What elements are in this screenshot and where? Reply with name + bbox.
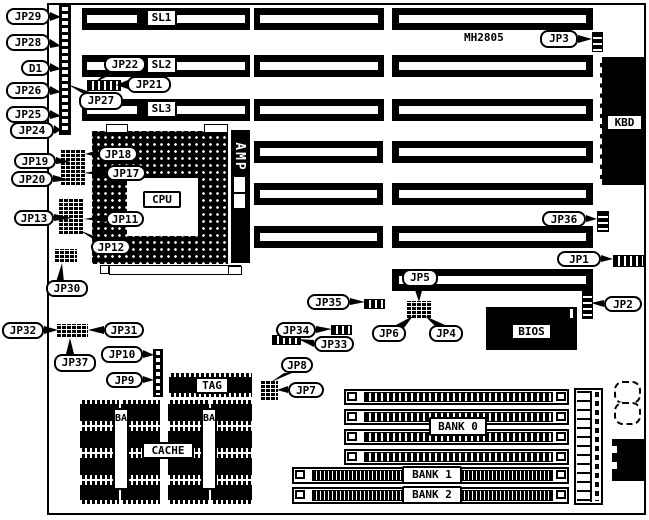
callout-jp24: JP24 <box>10 122 54 139</box>
callout-jp8: JP8 <box>281 357 313 373</box>
callout-jp20: JP20 <box>11 171 53 187</box>
callout-jp35: JP35 <box>307 294 350 310</box>
callout-jp33: JP33 <box>314 336 354 352</box>
callout-jp1: JP1 <box>557 251 601 267</box>
callout-jp10: JP10 <box>101 346 143 363</box>
callout-jp34: JP34 <box>276 322 316 338</box>
callout-jp18: JP18 <box>98 146 138 162</box>
callout-jp13: JP13 <box>14 210 54 226</box>
callout-jp26: JP26 <box>6 82 50 99</box>
callout-jp17: JP17 <box>106 165 146 181</box>
callout-jp21: JP21 <box>127 76 171 93</box>
callout-d1: D1 <box>21 60 50 76</box>
callout-jp19: JP19 <box>14 153 56 169</box>
motherboard-diagram: SL1 SL2 SL3 MH2805 CPU AMP KBD BIOS TAG <box>0 0 649 520</box>
callout-pointers <box>0 0 649 520</box>
callout-jp7: JP7 <box>288 382 324 398</box>
callout-jp31: JP31 <box>104 322 144 338</box>
callout-jp36: JP36 <box>542 211 586 227</box>
callout-jp22: JP22 <box>104 56 146 73</box>
callout-jp4: JP4 <box>429 325 463 342</box>
callout-jp30: JP30 <box>46 280 88 297</box>
callout-jp6: JP6 <box>372 325 406 342</box>
callout-jp12: JP12 <box>91 239 131 255</box>
callout-jp25: JP25 <box>6 106 50 123</box>
callout-jp27: JP27 <box>79 92 123 110</box>
callout-jp32: JP32 <box>2 322 44 339</box>
callout-jp37: JP37 <box>54 354 96 372</box>
callout-jp5: JP5 <box>402 269 438 287</box>
callout-jp3: JP3 <box>540 30 578 48</box>
callout-jp11: JP11 <box>106 211 144 227</box>
callout-jp9: JP9 <box>106 372 143 388</box>
callout-jp29: JP29 <box>6 8 50 25</box>
callout-jp2: JP2 <box>604 296 642 312</box>
callout-jp28: JP28 <box>6 34 50 51</box>
